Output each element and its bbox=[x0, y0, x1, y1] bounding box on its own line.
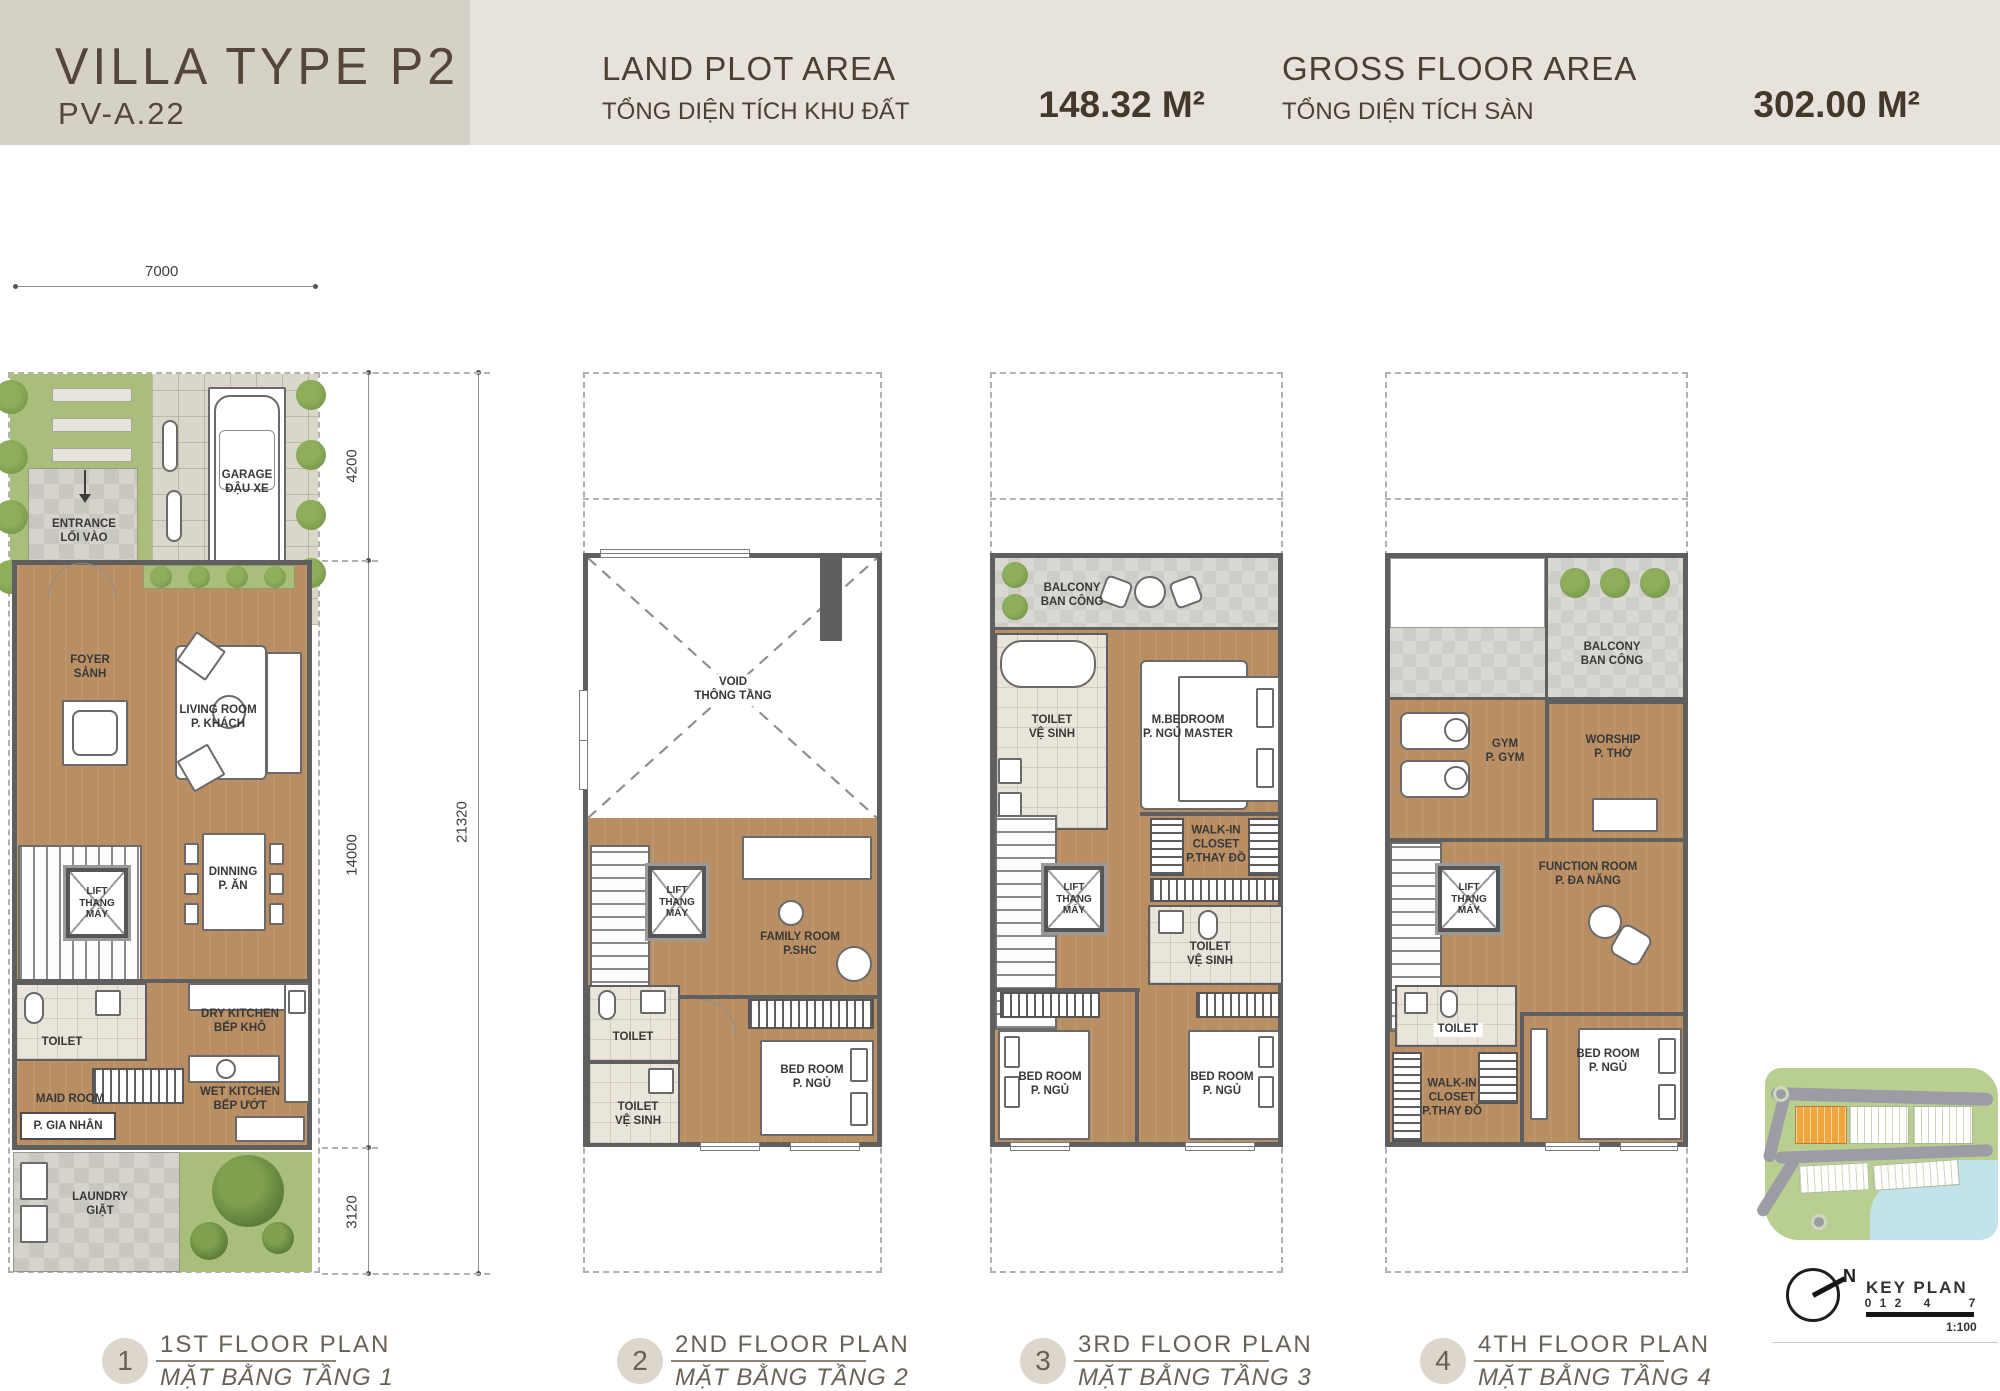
pillow bbox=[850, 1092, 868, 1126]
tree bbox=[262, 1222, 294, 1254]
pillow bbox=[1658, 1038, 1676, 1074]
dim-middle: 14000 bbox=[344, 834, 361, 876]
walkin-label-f3: WALK-IN CLOSETP.THAY ĐỒ bbox=[1168, 824, 1264, 865]
plant bbox=[1560, 568, 1590, 598]
land-plot-area-value: 148.32 M² bbox=[980, 84, 1205, 126]
void-label: VOIDTHÔNG TẦNG bbox=[688, 674, 777, 706]
bedroom-left-label: BED ROOMP. NGỦ bbox=[1018, 1071, 1081, 1099]
entrance-arrow-head bbox=[79, 494, 91, 503]
family-room-label: FAMILY ROOMP.SHC bbox=[760, 931, 840, 959]
master-toilet-label: TOILETVỆ SINH bbox=[1029, 714, 1075, 742]
bedroom-label-f4: BED ROOMP. NGỦ bbox=[1576, 1048, 1639, 1076]
pillow bbox=[1256, 748, 1274, 788]
window bbox=[790, 1142, 860, 1151]
dim-chain-inner bbox=[368, 372, 369, 1273]
dim-front: 4200 bbox=[344, 449, 361, 482]
wc-icon bbox=[1198, 910, 1218, 940]
scale-tick-7: 7 bbox=[1969, 1296, 1976, 1310]
pillow bbox=[1004, 1036, 1020, 1068]
laundry-label: LAUNDRYGIẶT bbox=[72, 1191, 128, 1219]
motorbike-icon bbox=[162, 420, 178, 472]
plant bbox=[150, 566, 172, 588]
caption-divider bbox=[156, 1360, 336, 1362]
dim-extension bbox=[322, 560, 378, 562]
window bbox=[600, 549, 750, 558]
chair bbox=[184, 873, 199, 895]
treadmill-seat bbox=[1444, 766, 1468, 790]
villa-code: PV-A.22 bbox=[58, 96, 186, 132]
caption-divider bbox=[671, 1360, 866, 1362]
dining-label: DINNINGP. ĂN bbox=[209, 866, 258, 894]
lot-block bbox=[1849, 1106, 1909, 1144]
scale-tick-2: 2 bbox=[1895, 1296, 1902, 1310]
gym-label: GYMP. GYM bbox=[1486, 738, 1525, 766]
chair bbox=[184, 903, 199, 925]
maid-room-chip: P. GIA NHÂN bbox=[20, 1112, 116, 1140]
dim-extension bbox=[322, 372, 490, 374]
stove-icon bbox=[288, 990, 306, 1014]
plant bbox=[1600, 568, 1630, 598]
wc-icon bbox=[24, 992, 44, 1024]
balcony-label-f3: BALCONYBAN CÔNG bbox=[1041, 582, 1104, 610]
function-room-label: FUNCTION ROOMP. ĐA NĂNG bbox=[1539, 861, 1637, 889]
entrance-arrow-icon bbox=[84, 470, 86, 496]
lift-label-f1: LIFTTHANG MÁY bbox=[68, 886, 126, 921]
caption-subtitle: MẶT BẰNG TẦNG 4 bbox=[1478, 1364, 1712, 1391]
partition-wall bbox=[1140, 812, 1283, 816]
shrub bbox=[296, 440, 326, 470]
lot-block bbox=[1913, 1106, 1973, 1144]
wardrobe bbox=[1000, 992, 1100, 1018]
worship-label: WORSHIPP. THỜ bbox=[1586, 734, 1641, 762]
plant bbox=[264, 566, 286, 588]
lift-label-f2: LIFTTHANG MÁY bbox=[648, 885, 706, 920]
scale-tick-0: 0 bbox=[1865, 1296, 1872, 1310]
bedroom-right-label: BED ROOMP. NGỦ bbox=[1190, 1071, 1253, 1099]
caption-divider bbox=[1074, 1360, 1269, 1362]
toilet-2-label: TOILETVỆ SINH bbox=[615, 1101, 661, 1129]
master-bedroom-label: M.BEDROOMP. NGỦ MASTER bbox=[1143, 714, 1233, 742]
window bbox=[1620, 1142, 1678, 1151]
sink-icon bbox=[1158, 910, 1184, 934]
maid-bed bbox=[92, 1068, 184, 1104]
chair bbox=[269, 903, 284, 925]
plant bbox=[1002, 562, 1028, 588]
planter-bed bbox=[52, 448, 132, 462]
scale-tick-4: 4 bbox=[1924, 1296, 1931, 1310]
floor-lamp-icon bbox=[778, 900, 804, 926]
caption-subtitle: MẶT BẰNG TẦNG 2 bbox=[675, 1364, 909, 1391]
window bbox=[1545, 1142, 1600, 1151]
roof-outline bbox=[1385, 498, 1688, 500]
caption-title: 1ST FLOOR PLAN bbox=[160, 1331, 390, 1359]
highlighted-lot-block bbox=[1795, 1106, 1847, 1144]
entrance-label: ENTRANCELỐI VÀO bbox=[52, 518, 116, 546]
partition-wall bbox=[1520, 1012, 1524, 1147]
walkin-label-f4: WALK-IN CLOSETP.THAY ĐỒ bbox=[1404, 1077, 1500, 1118]
site-map bbox=[1765, 1068, 1998, 1240]
scale-tick-1: 1 bbox=[1880, 1296, 1887, 1310]
toilet-label-f1: TOILET bbox=[42, 1036, 83, 1050]
wall-pier bbox=[820, 553, 842, 641]
pillow bbox=[850, 1048, 868, 1082]
wc-icon bbox=[598, 990, 616, 1020]
partition-wall bbox=[1135, 988, 1139, 1147]
window bbox=[1010, 1142, 1070, 1151]
chair bbox=[269, 843, 284, 865]
wardrobe bbox=[748, 999, 874, 1029]
washer-icon bbox=[20, 1162, 48, 1200]
roof-outline bbox=[990, 498, 1283, 500]
maid-room-label: MAID ROOM bbox=[36, 1093, 104, 1107]
plant bbox=[188, 566, 210, 588]
dry-kitchen-label: DRY KITCHENBẾP KHÔ bbox=[201, 1008, 279, 1036]
window bbox=[579, 690, 588, 790]
plant bbox=[1640, 568, 1670, 598]
pillow bbox=[1258, 1076, 1274, 1108]
foyer-table-top bbox=[72, 710, 118, 756]
gross-floor-area-title: GROSS FLOOR AREA bbox=[1282, 50, 1637, 88]
lift-label-f3: LIFTTHANG MÁY bbox=[1045, 882, 1103, 917]
window bbox=[1185, 1142, 1255, 1151]
sink-icon bbox=[648, 1068, 674, 1094]
window bbox=[700, 1142, 760, 1151]
hob-icon bbox=[216, 1059, 236, 1079]
roof-outline bbox=[583, 498, 882, 500]
partition-wall bbox=[1549, 700, 1683, 704]
dim-rear: 3120 bbox=[344, 1195, 361, 1228]
toilet-label-f3: TOILETVỆ SINH bbox=[1187, 941, 1233, 969]
pillow bbox=[1658, 1084, 1676, 1120]
chair bbox=[184, 843, 199, 865]
wardrobe bbox=[1150, 878, 1280, 902]
dim-tick bbox=[313, 284, 318, 289]
caption-divider bbox=[1474, 1360, 1664, 1362]
gross-floor-area-value: 302.00 M² bbox=[1695, 84, 1920, 126]
caption-subtitle: MẶT BẰNG TẦNG 3 bbox=[1078, 1364, 1312, 1391]
armchair bbox=[836, 946, 872, 982]
caption-number: 4 bbox=[1420, 1338, 1466, 1384]
washer-icon bbox=[20, 1205, 48, 1243]
partition-wall bbox=[1545, 700, 1549, 840]
land-plot-area-subtitle: TỔNG DIỆN TÍCH KHU ĐẤT bbox=[602, 98, 910, 126]
caption-subtitle: MẶT BẰNG TẦNG 1 bbox=[160, 1364, 394, 1391]
balcony-table bbox=[1134, 576, 1166, 608]
sink-icon bbox=[95, 990, 121, 1016]
roundabout bbox=[1773, 1086, 1789, 1102]
planter-bed bbox=[52, 388, 132, 402]
tree bbox=[190, 1222, 228, 1260]
wardrobe bbox=[1196, 992, 1280, 1018]
living-room-label: LIVING ROOMP. KHÁCH bbox=[179, 704, 256, 732]
entrance-porch bbox=[28, 468, 138, 565]
dim-extension bbox=[322, 1147, 378, 1149]
pillow bbox=[1258, 1036, 1274, 1068]
scale-bar bbox=[1866, 1312, 1974, 1317]
motorbike-icon bbox=[166, 490, 182, 542]
divider-line bbox=[1772, 1342, 1998, 1343]
caption-number: 1 bbox=[102, 1338, 148, 1384]
land-plot-area-title: LAND PLOT AREA bbox=[602, 50, 896, 88]
dim-line-width bbox=[15, 286, 315, 287]
dim-chain-outer bbox=[478, 372, 479, 1273]
key-plan-label: KEY PLAN bbox=[1866, 1278, 1968, 1298]
chair bbox=[269, 873, 284, 895]
balcony-strip-f4 bbox=[1390, 628, 1545, 700]
bedroom-label-f2: BED ROOMP. NGỦ bbox=[780, 1064, 843, 1092]
garage-label: GARAGEĐẬU XE bbox=[222, 469, 272, 497]
caption-title: 3RD FLOOR PLAN bbox=[1078, 1331, 1313, 1359]
toilet-label-f4: TOILET bbox=[1434, 1023, 1483, 1037]
dim-lot-width: 7000 bbox=[145, 263, 178, 280]
lot-block bbox=[1798, 1162, 1869, 1194]
caption-title: 2ND FLOOR PLAN bbox=[675, 1331, 910, 1359]
wc-icon bbox=[1440, 990, 1458, 1018]
sink-icon bbox=[998, 758, 1022, 784]
villa-type-title: VILLA TYPE P2 bbox=[55, 36, 459, 96]
altar-table bbox=[1592, 798, 1658, 832]
caption-title: 4TH FLOOR PLAN bbox=[1478, 1331, 1710, 1359]
scale-ratio: 1:100 bbox=[1946, 1320, 1977, 1334]
dim-tick bbox=[13, 284, 18, 289]
dim-total: 21320 bbox=[454, 801, 471, 843]
sofa bbox=[742, 836, 872, 880]
dresser bbox=[1530, 1028, 1548, 1120]
sink-icon bbox=[640, 990, 666, 1014]
north-label: N bbox=[1843, 1266, 1856, 1287]
foyer-label: FOYERSẢNH bbox=[70, 654, 110, 682]
plant bbox=[226, 566, 248, 588]
partition-wall bbox=[1520, 1012, 1688, 1016]
floor-plan-sheet: VILLA TYPE P2 PV-A.22 LAND PLOT AREA TỔN… bbox=[0, 0, 2000, 1391]
bathtub bbox=[1000, 640, 1096, 688]
treadmill-seat bbox=[1444, 718, 1468, 742]
gross-floor-area-subtitle: TỔNG DIỆN TÍCH SÀN bbox=[1282, 98, 1534, 126]
roundabout bbox=[1811, 1214, 1827, 1230]
caption-number: 3 bbox=[1020, 1338, 1066, 1384]
tree bbox=[212, 1155, 284, 1227]
wet-kitchen-label: WET KITCHENBẾP ƯỚT bbox=[200, 1086, 280, 1114]
balcony-label-f4: BALCONYBAN CÔNG bbox=[1581, 641, 1644, 669]
shrub bbox=[296, 380, 326, 410]
sink-icon bbox=[1404, 992, 1428, 1014]
open-roof-area bbox=[1390, 558, 1545, 628]
planter-bed bbox=[52, 418, 132, 432]
plant bbox=[1002, 594, 1028, 620]
kitchen-cabinet bbox=[235, 1116, 305, 1142]
lift-label-f4: LIFTTHANG MÁY bbox=[1440, 882, 1498, 917]
pillow bbox=[1256, 688, 1274, 728]
shrub bbox=[296, 500, 326, 530]
caption-number: 2 bbox=[617, 1338, 663, 1384]
dim-extension bbox=[322, 1273, 490, 1275]
sofa bbox=[266, 652, 302, 774]
toilet-1-label: TOILET bbox=[613, 1031, 654, 1045]
